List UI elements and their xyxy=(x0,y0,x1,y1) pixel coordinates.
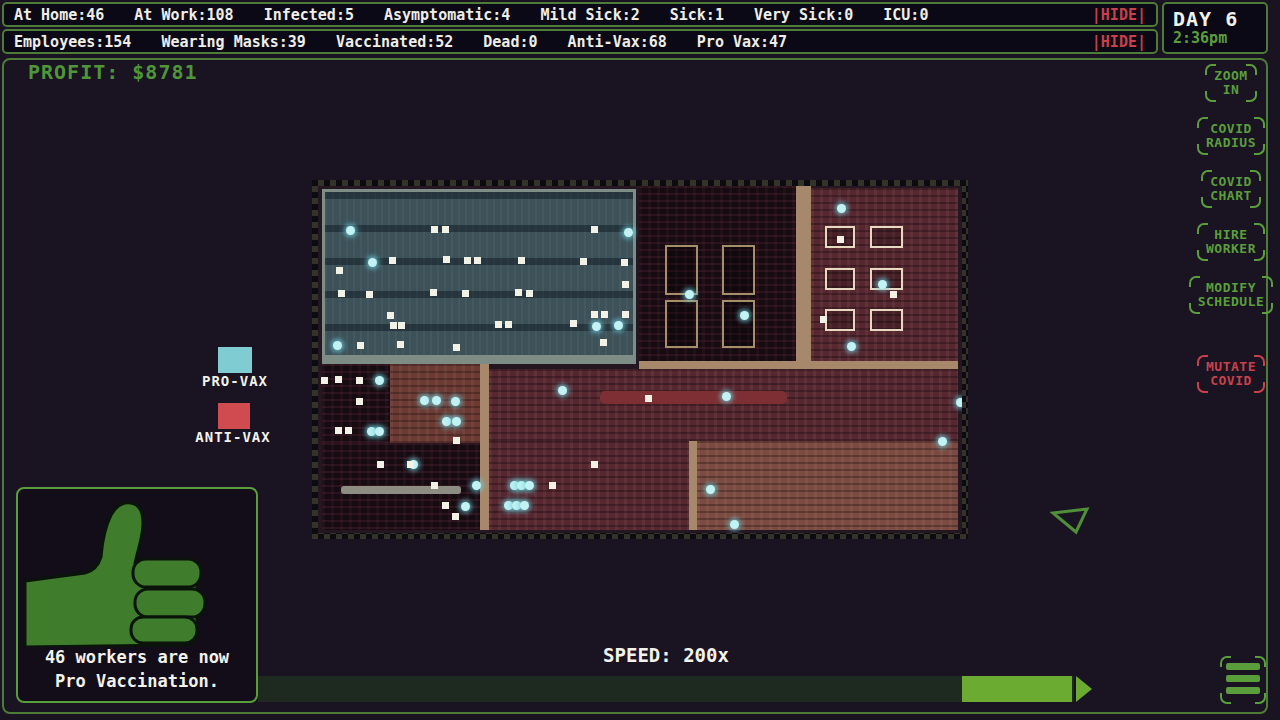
worker-dot xyxy=(601,311,608,318)
worker-dot xyxy=(387,312,394,319)
worker-dot xyxy=(431,482,438,489)
worker-dot xyxy=(474,257,481,264)
corner-bracket xyxy=(1255,693,1266,704)
worker-dot xyxy=(442,226,449,233)
worker-dot xyxy=(622,311,629,318)
button-label: MUTATE COVID xyxy=(1206,359,1256,388)
worker-dot xyxy=(356,398,363,405)
hide-stats-button[interactable]: |HIDE| xyxy=(1092,33,1146,51)
button-label: COVID RADIUS xyxy=(1206,121,1256,150)
worker-dot-provax xyxy=(368,258,377,267)
worker-dot xyxy=(398,322,405,329)
factory-map[interactable] xyxy=(318,186,962,533)
worker-dot-provax xyxy=(722,392,731,401)
worker-dot xyxy=(453,437,460,444)
cursor-triangle-icon xyxy=(1050,506,1092,536)
worker-dot xyxy=(321,377,328,384)
speed-slider[interactable] xyxy=(258,676,1074,702)
map-room-brown xyxy=(697,441,958,530)
corner-bracket xyxy=(1246,91,1257,102)
worker-dot xyxy=(505,321,512,328)
worker-dot-provax xyxy=(624,228,633,237)
map-room-tan xyxy=(796,186,811,363)
antivax-label: ANTI-VAX xyxy=(177,429,289,445)
worker-dot xyxy=(515,289,522,296)
worker-dot xyxy=(430,289,437,296)
day-label: DAY 6 xyxy=(1173,8,1266,30)
hire-worker-button[interactable]: HIRE WORKER xyxy=(1197,223,1265,261)
worker-dot xyxy=(645,395,652,402)
modify-schedule-button[interactable]: MODIFY SCHEDULE xyxy=(1189,276,1274,314)
time-label: 2:36pm xyxy=(1173,30,1266,46)
worker-dot xyxy=(462,290,469,297)
corner-bracket xyxy=(1197,117,1208,128)
map-room-sidewalk xyxy=(322,355,636,364)
corner-bracket xyxy=(1197,382,1208,393)
worker-dot xyxy=(600,339,607,346)
notification-panel: 46 workers are now Pro Vaccination. xyxy=(16,487,258,703)
worker-dot-provax xyxy=(592,322,601,331)
map-room-blue xyxy=(322,189,636,360)
map-room-tan xyxy=(480,364,489,531)
corner-bracket xyxy=(1189,276,1200,287)
corner-bracket xyxy=(1197,223,1208,234)
worker-dot-provax xyxy=(346,226,355,235)
stats-bar-primary: At Home:46At Work:108Infected:5Asymptoma… xyxy=(2,2,1158,27)
provax-label: PRO-VAX xyxy=(183,373,287,389)
stat-dead: Dead:0 xyxy=(483,33,537,51)
worker-dot-provax xyxy=(472,481,481,490)
zoom-in-button[interactable]: ZOOM IN xyxy=(1205,64,1256,102)
map-structure-white xyxy=(870,309,903,331)
worker-dot xyxy=(338,290,345,297)
worker-dot xyxy=(335,427,342,434)
map-structure-khaki xyxy=(665,245,698,295)
stat-wearing-masks: Wearing Masks:39 xyxy=(161,33,306,51)
menu-bar xyxy=(1226,687,1260,694)
game-screen: At Home:46At Work:108Infected:5Asymptoma… xyxy=(0,0,1280,720)
worker-dot xyxy=(356,377,363,384)
worker-dot xyxy=(890,291,897,298)
worker-dot xyxy=(431,226,438,233)
stat-anti-vax: Anti-Vax:68 xyxy=(568,33,667,51)
factory-map-frame xyxy=(312,180,968,539)
worker-dot xyxy=(407,461,414,468)
worker-dot xyxy=(453,344,460,351)
worker-dot xyxy=(622,281,629,288)
worker-dot-provax xyxy=(558,386,567,395)
worker-dot xyxy=(452,513,459,520)
button-label: HIRE WORKER xyxy=(1206,227,1256,256)
map-structure-khaki xyxy=(722,245,755,295)
worker-dot-provax xyxy=(740,311,749,320)
map-room-maroon xyxy=(489,369,958,442)
covid-radius-button[interactable]: COVID RADIUS xyxy=(1197,117,1265,155)
stat-infected: Infected:5 xyxy=(264,6,354,24)
worker-dot xyxy=(570,320,577,327)
speed-label: SPEED: 200x xyxy=(258,644,1074,666)
worker-dot-provax xyxy=(956,398,962,407)
worker-dot xyxy=(443,256,450,263)
stat-pro-vax: Pro Vax:47 xyxy=(697,33,787,51)
worker-dot xyxy=(397,341,404,348)
worker-dot xyxy=(549,482,556,489)
action-button-column: ZOOM INCOVID RADIUSCOVID CHARTHIRE WORKE… xyxy=(1183,64,1279,393)
worker-dot xyxy=(464,257,471,264)
worker-dot-provax xyxy=(420,396,429,405)
worker-dot xyxy=(357,342,364,349)
worker-dot xyxy=(591,461,598,468)
worker-dot-provax xyxy=(847,342,856,351)
worker-dot xyxy=(336,267,343,274)
corner-bracket xyxy=(1254,223,1265,234)
stat-sick: Sick:1 xyxy=(670,6,724,24)
stat-at-home: At Home:46 xyxy=(14,6,104,24)
stats-bar-secondary: Employees:154Wearing Masks:39Vaccinated:… xyxy=(2,29,1158,54)
speed-slider-handle[interactable] xyxy=(962,676,1072,702)
stat-employees: Employees:154 xyxy=(14,33,131,51)
worker-dot xyxy=(837,236,844,243)
profit-label: PROFIT: $8781 xyxy=(28,60,198,84)
worker-dot xyxy=(526,290,533,297)
map-structure-white xyxy=(870,226,903,248)
map-room-tan xyxy=(639,361,958,369)
worker-dot xyxy=(366,291,373,298)
worker-dot xyxy=(335,376,342,383)
map-structure-white xyxy=(825,309,855,331)
notification-message: 46 workers are now Pro Vaccination. xyxy=(18,645,256,693)
corner-bracket xyxy=(1262,276,1273,287)
worker-dot-provax xyxy=(938,437,947,446)
play-arrow-icon[interactable] xyxy=(1076,676,1092,702)
button-label: MODIFY SCHEDULE xyxy=(1198,280,1265,309)
worker-dot xyxy=(591,311,598,318)
stat-vaccinated: Vaccinated:52 xyxy=(336,33,453,51)
worker-dot xyxy=(495,321,502,328)
worker-dot xyxy=(580,258,587,265)
worker-dot-provax xyxy=(706,485,715,494)
stat-mild-sick: Mild Sick:2 xyxy=(540,6,639,24)
worker-dot-provax xyxy=(333,341,342,350)
worker-dot xyxy=(518,257,525,264)
map-structure-white xyxy=(825,268,855,290)
map-room-tan xyxy=(689,441,697,530)
menu-bar xyxy=(1226,675,1260,682)
worker-dot-provax xyxy=(525,481,534,490)
day-time-panel: DAY 6 2:36pm xyxy=(1162,2,1268,54)
worker-dot xyxy=(345,427,352,434)
worker-dot-provax xyxy=(461,502,470,511)
button-label: COVID CHART xyxy=(1210,174,1252,203)
covid-chart-button[interactable]: COVID CHART xyxy=(1201,170,1261,208)
stat-at-work: At Work:108 xyxy=(134,6,233,24)
worker-dot xyxy=(820,316,827,323)
stat-icu: ICU:0 xyxy=(883,6,928,24)
stat-very-sick: Very Sick:0 xyxy=(754,6,853,24)
corner-bracket xyxy=(1220,693,1231,704)
corner-bracket xyxy=(1254,382,1265,393)
map-structure-khaki xyxy=(665,300,698,348)
worker-dot xyxy=(390,322,397,329)
map-structure-couch xyxy=(600,391,787,404)
button-label: ZOOM IN xyxy=(1214,68,1247,97)
worker-dot xyxy=(621,259,628,266)
worker-dot xyxy=(591,226,598,233)
map-structure-khaki xyxy=(722,300,755,348)
provax-swatch xyxy=(218,347,252,373)
worker-dot xyxy=(389,257,396,264)
hide-stats-button[interactable]: |HIDE| xyxy=(1092,6,1146,24)
stat-asymptomatic: Asymptomatic:4 xyxy=(384,6,510,24)
corner-bracket xyxy=(1254,117,1265,128)
worker-dot-provax xyxy=(452,417,461,426)
map-structure-gray xyxy=(341,486,461,494)
menu-bar xyxy=(1226,663,1260,670)
menu-hamburger-icon[interactable] xyxy=(1220,656,1266,704)
worker-dot-provax xyxy=(432,396,441,405)
corner-bracket xyxy=(1205,91,1216,102)
antivax-swatch xyxy=(218,403,250,429)
worker-dot xyxy=(442,502,449,509)
map-room-dark xyxy=(639,186,796,361)
thumbs-up-icon xyxy=(20,497,250,647)
mutate-covid-button[interactable]: MUTATE COVID xyxy=(1197,355,1265,393)
worker-dot xyxy=(377,461,384,468)
